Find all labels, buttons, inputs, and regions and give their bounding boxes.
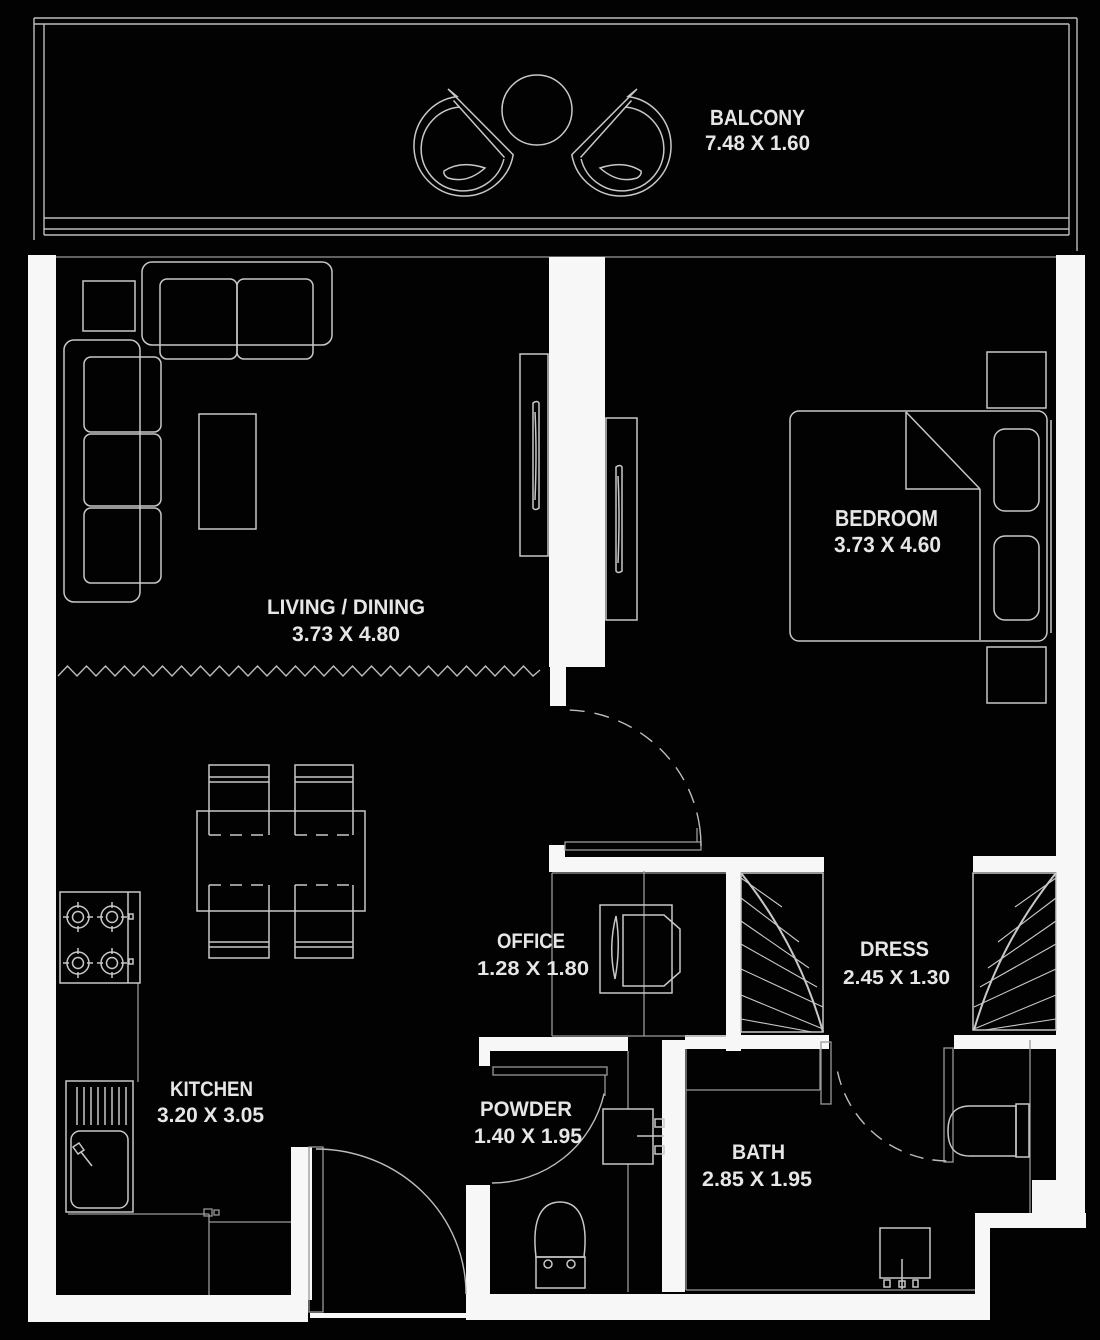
svg-text:POWDER: POWDER [480,1098,572,1121]
svg-text:KITCHEN: KITCHEN [170,1078,253,1101]
svg-text:2.85 X 1.95: 2.85 X 1.95 [702,1168,812,1191]
svg-text:7.48 X 1.60: 7.48 X 1.60 [705,132,810,155]
svg-text:OFFICE: OFFICE [497,930,565,953]
svg-text:3.20 X 3.05: 3.20 X 3.05 [157,1104,264,1127]
svg-text:2.45 X 1.30: 2.45 X 1.30 [843,967,950,989]
svg-text:1.40 X 1.95: 1.40 X 1.95 [474,1125,582,1148]
svg-text:BATH: BATH [732,1141,785,1164]
svg-text:LIVING / DINING: LIVING / DINING [267,596,425,619]
svg-text:BALCONY: BALCONY [710,105,805,130]
svg-text:3.73 X 4.60: 3.73 X 4.60 [834,532,941,557]
svg-text:3.73 X 4.80: 3.73 X 4.80 [292,623,400,646]
svg-text:BEDROOM: BEDROOM [835,505,938,531]
svg-text:1.28 X 1.80: 1.28 X 1.80 [477,958,589,980]
svg-text:DRESS: DRESS [860,938,929,961]
